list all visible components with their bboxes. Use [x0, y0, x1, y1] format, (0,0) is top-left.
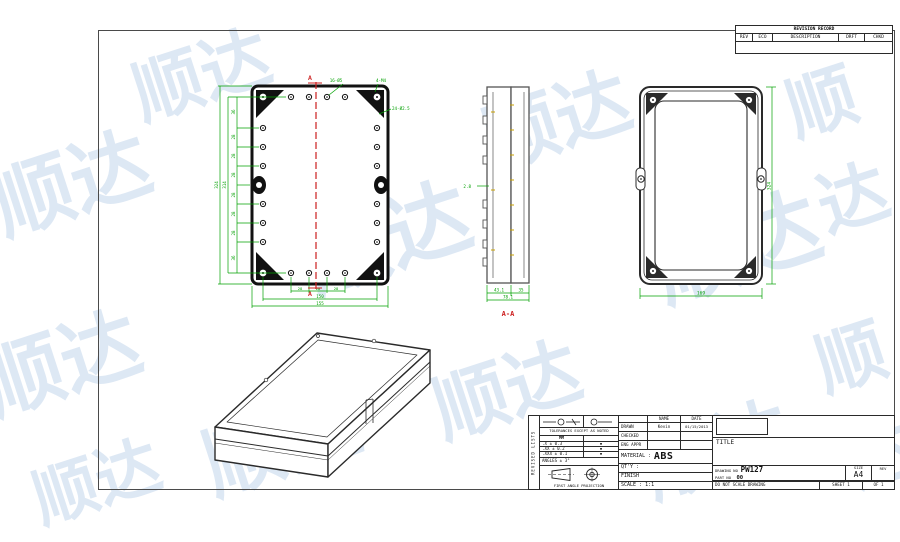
part-no-label: PART NO [715, 476, 731, 480]
datum-symbols-icon [542, 417, 582, 427]
dim-v-chain-4: 28 [231, 192, 236, 198]
dim-v-total-outer: 324 [214, 181, 219, 189]
material-value: ABS [654, 451, 674, 463]
part-no-value: 00 [736, 475, 743, 481]
dim-v-total-inner: 314 [222, 181, 227, 189]
dim-h-chain-2: 28 [334, 286, 339, 291]
drawing-number-cell: DRAWING NO PW127 PART NO 00 [712, 465, 846, 481]
size-cell: SIZE A4 [845, 465, 872, 481]
dim-section-right: 35 [518, 288, 524, 293]
material-label: MATERIAL : [621, 454, 651, 460]
drawing-sheet: { "watermark": {"text": "顺达", "color": "… [0, 0, 900, 500]
projection-cell: FIRST ANGLE PROJECTION [539, 465, 619, 490]
title-label: TITLE [712, 437, 895, 466]
dim-v-chain-5: 28 [231, 211, 236, 217]
logo-box [716, 418, 768, 435]
dim-back-width: 169 [697, 291, 705, 297]
revision-empty-row [735, 41, 893, 54]
dim-wall-thickness: 2.8 [463, 184, 471, 189]
dim-v-chain-7: 36 [231, 255, 236, 261]
size-value: A4 [846, 470, 871, 479]
scale-label: SCALE : 1:1 [618, 481, 713, 490]
dim-v-chain-0: 36 [231, 109, 236, 115]
first-angle-projection-icon [540, 467, 618, 482]
sheet-label: SHEET 1 [819, 481, 863, 490]
dim-section-left: 43.1 [494, 288, 505, 293]
dim-h-total-outer: 155 [316, 301, 324, 306]
dim-h-total-inner: 150 [316, 294, 324, 299]
dim-v-chain-1: 28 [231, 134, 236, 140]
drawing-no-label: DRAWING NO [715, 469, 738, 473]
do-not-scale-note: DO NOT SCALE DRAWING [712, 481, 820, 490]
drawing-no-value: PW127 [741, 466, 764, 475]
corner-callout: 4-M4 [376, 78, 387, 83]
section-marker-bottom: A [308, 290, 312, 298]
back-view [636, 87, 766, 284]
dim-back-height: 324 [767, 182, 773, 190]
dim-v-chain-6: 28 [231, 230, 236, 236]
section-view [483, 87, 529, 283]
hole-callout: 16-Ø5 [330, 78, 343, 83]
section-view-label: A-A [502, 310, 515, 318]
dim-v-chain-3: 28 [231, 172, 236, 178]
of-label: OF 1 [862, 481, 895, 490]
plan-view [252, 86, 388, 284]
material-cell: MATERIAL : ABS [618, 449, 713, 464]
small-hole-callout: 24-Ø2.5 [392, 106, 410, 111]
dim-section-total: 78.1 [503, 295, 514, 300]
dim-h-chain-0: 28 [298, 286, 303, 291]
rev-cell: REV [871, 465, 895, 481]
dim-v-chain-2: 28 [231, 153, 236, 159]
isometric-view [215, 333, 430, 477]
surface-symbol-glyph-icon [588, 417, 614, 427]
first-angle-projection-label: FIRST ANGLE PROJECTION [540, 484, 618, 488]
section-marker-top: A [308, 74, 312, 82]
